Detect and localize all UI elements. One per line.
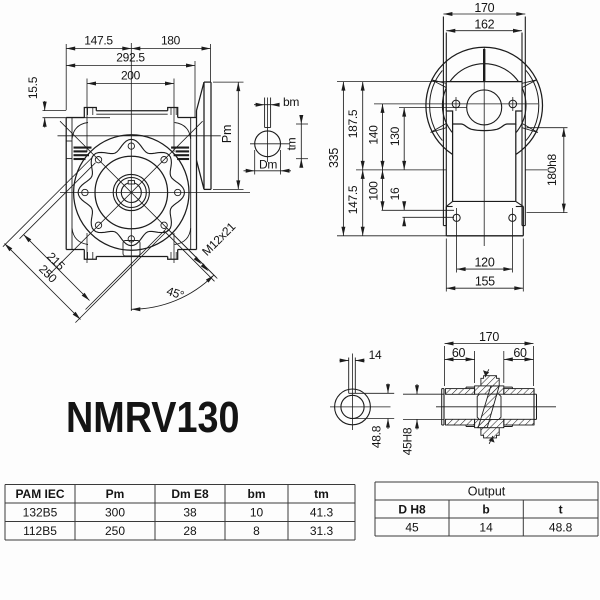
svg-text:200: 200: [121, 69, 141, 83]
svg-text:41.3: 41.3: [310, 505, 334, 519]
svg-text:132B5: 132B5: [23, 505, 58, 519]
svg-text:8: 8: [253, 524, 260, 538]
svg-text:292.5: 292.5: [116, 51, 145, 65]
svg-text:335: 335: [327, 148, 341, 168]
svg-text:14: 14: [479, 521, 493, 535]
svg-text:140: 140: [366, 125, 380, 145]
svg-text:162: 162: [474, 18, 494, 32]
svg-text:31.3: 31.3: [310, 524, 334, 538]
svg-text:130: 130: [388, 126, 402, 146]
svg-text:60: 60: [452, 346, 466, 360]
svg-text:45H8: 45H8: [401, 427, 415, 455]
svg-text:Pm: Pm: [106, 487, 125, 501]
svg-text:16: 16: [388, 187, 402, 200]
svg-text:180: 180: [161, 34, 181, 48]
svg-text:48.8: 48.8: [370, 425, 384, 448]
svg-text:b: b: [482, 503, 489, 517]
svg-text:147.5: 147.5: [84, 34, 113, 48]
svg-text:170: 170: [474, 1, 494, 15]
svg-text:tm: tm: [314, 487, 329, 501]
svg-text:147.5: 147.5: [346, 185, 360, 214]
svg-text:D H8: D H8: [398, 503, 426, 517]
svg-text:100: 100: [366, 181, 380, 201]
svg-text:10: 10: [250, 505, 264, 519]
svg-text:250: 250: [105, 524, 125, 538]
svg-text:NMRV130: NMRV130: [66, 394, 240, 442]
svg-text:45: 45: [405, 521, 419, 535]
svg-text:180h8: 180h8: [545, 153, 559, 185]
svg-text:PAM IEC: PAM IEC: [15, 487, 64, 501]
svg-text:Dm: Dm: [259, 157, 277, 171]
svg-text:15.5: 15.5: [26, 76, 40, 99]
svg-text:48.8: 48.8: [549, 521, 573, 535]
svg-text:300: 300: [105, 505, 125, 519]
svg-text:60: 60: [513, 346, 527, 360]
svg-text:Output: Output: [468, 484, 506, 498]
svg-text:187.5: 187.5: [346, 109, 360, 138]
svg-text:tm: tm: [284, 137, 298, 150]
svg-text:120: 120: [475, 255, 495, 269]
svg-text:38: 38: [183, 505, 197, 519]
svg-text:28: 28: [183, 524, 197, 538]
svg-text:t: t: [559, 503, 563, 517]
svg-text:112B5: 112B5: [23, 524, 57, 538]
svg-text:bm: bm: [283, 95, 299, 109]
svg-text:14: 14: [369, 348, 382, 362]
svg-text:Pm: Pm: [220, 125, 234, 143]
svg-text:155: 155: [475, 275, 495, 289]
svg-text:bm: bm: [248, 487, 266, 501]
svg-text:Dm E8: Dm E8: [171, 487, 209, 501]
svg-text:170: 170: [479, 330, 499, 344]
